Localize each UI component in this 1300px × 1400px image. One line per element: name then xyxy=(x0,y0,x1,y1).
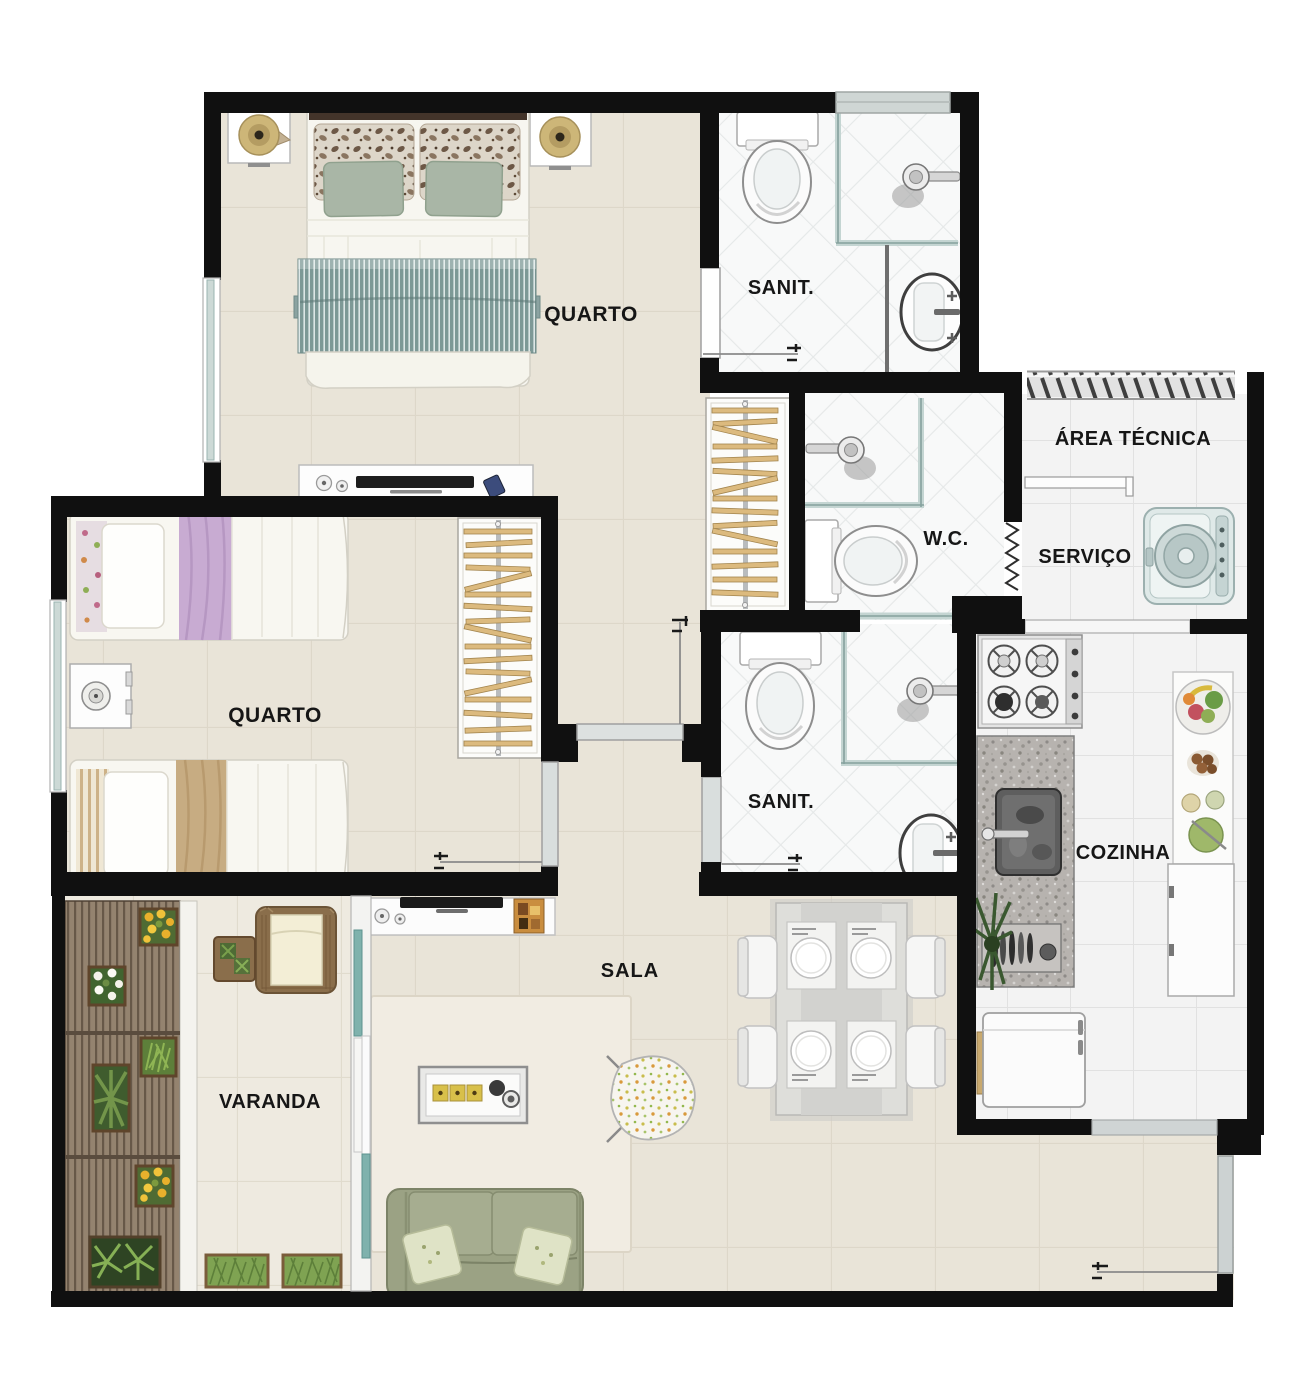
svg-text:SALA: SALA xyxy=(601,960,659,982)
svg-text:QUARTO: QUARTO xyxy=(228,704,322,727)
svg-text:VARANDA: VARANDA xyxy=(219,1091,321,1113)
svg-text:SANIT.: SANIT. xyxy=(748,791,814,813)
svg-text:W.C.: W.C. xyxy=(923,528,968,550)
svg-text:ÁREA TÉCNICA: ÁREA TÉCNICA xyxy=(1055,427,1211,450)
svg-text:COZINHA: COZINHA xyxy=(1076,842,1171,864)
svg-text:SERVIÇO: SERVIÇO xyxy=(1038,546,1131,568)
svg-text:SANIT.: SANIT. xyxy=(748,277,814,299)
svg-text:QUARTO: QUARTO xyxy=(544,303,638,326)
